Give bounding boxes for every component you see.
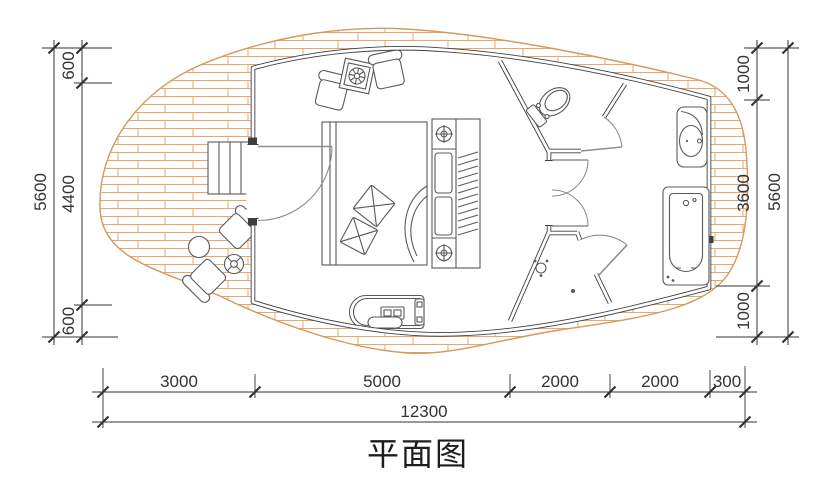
- door-jamb-block: [248, 219, 257, 226]
- dim-left-total: 5600: [31, 173, 50, 211]
- page-title: 平面图: [367, 436, 469, 472]
- dim-left-4400: 4400: [59, 175, 78, 213]
- washbasin: [677, 107, 707, 167]
- dim-bottom-5000: 5000: [363, 372, 401, 391]
- dim-bottom-total: 12300: [400, 402, 447, 421]
- floor-drain: [571, 289, 575, 293]
- door-jamb-block: [248, 138, 257, 145]
- floor-plan-page: 600 4400 600 5600 1000 3600 1000 5600 30…: [0, 0, 837, 496]
- dim-left-600-bot: 600: [59, 307, 78, 335]
- dim-right-3600: 3600: [734, 174, 753, 212]
- dim-bottom-2000-b: 2000: [641, 372, 679, 391]
- bathtub: [663, 187, 709, 285]
- dim-right-1000-top: 1000: [734, 55, 753, 93]
- dim-bottom-3000: 3000: [160, 372, 198, 391]
- outdoor-round-table: [189, 237, 210, 258]
- dim-right-1000-bot: 1000: [734, 292, 753, 330]
- dim-left-600-top: 600: [59, 51, 78, 79]
- double-bed: [322, 122, 427, 265]
- dim-bottom-2000-a: 2000: [541, 372, 579, 391]
- headboard-wardrobe-unit: [432, 119, 480, 268]
- potted-plant: [225, 255, 244, 274]
- floor-plan-canvas: 600 4400 600 5600 1000 3600 1000 5600 30…: [0, 0, 837, 496]
- dim-bottom-300: 300: [713, 372, 741, 391]
- tv-cabinet: [350, 296, 425, 329]
- dim-right-total: 5600: [765, 173, 784, 211]
- entry-steps: [208, 142, 253, 194]
